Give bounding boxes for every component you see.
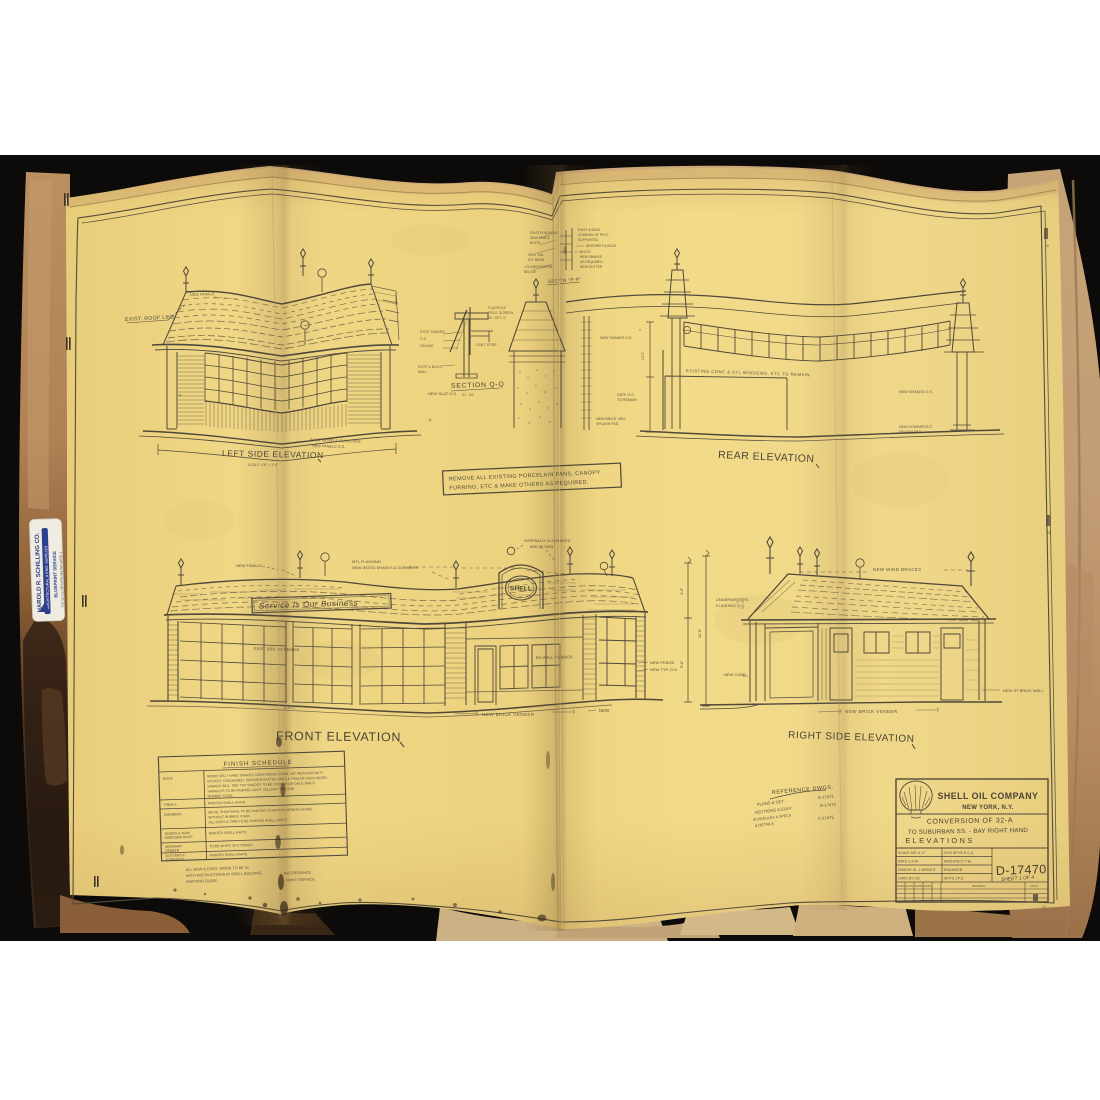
svg-text:NEW BRICK VEN.: NEW BRICK VEN. bbox=[596, 417, 626, 421]
svg-text:LEFT SIDE ELEVATION: LEFT SIDE ELEVATION bbox=[222, 448, 324, 460]
svg-text:MARK: MARK bbox=[915, 884, 923, 888]
svg-text:SC. 3/4": SC. 3/4" bbox=[462, 393, 475, 397]
svg-text:10'-0": 10'-0" bbox=[641, 351, 645, 360]
svg-text:EXIST FLAGPOLE: EXIST FLAGPOLE bbox=[530, 231, 559, 235]
svg-text:INTERNALLY ILLUMINATED: INTERNALLY ILLUMINATED bbox=[524, 539, 571, 543]
svg-text:13: 13 bbox=[1042, 905, 1046, 909]
svg-text:NEW DOWNSPOUT: NEW DOWNSPOUT bbox=[899, 425, 933, 429]
svg-text:STL BEAM: STL BEAM bbox=[528, 258, 544, 262]
svg-text:15: 15 bbox=[1045, 244, 1049, 248]
svg-text:PROJ. SCREEN: PROJ. SCREEN bbox=[488, 311, 514, 315]
svg-text:NEW SHAKES O.S.: NEW SHAKES O.S. bbox=[600, 336, 632, 340]
svg-text:DWN BY W. J. WRIGHT: DWN BY W. J. WRIGHT bbox=[898, 868, 937, 872]
svg-text:NEW TYP. O.S.: NEW TYP. O.S. bbox=[650, 667, 678, 672]
svg-text:NEW GUTTER: NEW GUTTER bbox=[580, 265, 603, 269]
svg-text:4'-0": 4'-0" bbox=[680, 587, 684, 595]
svg-text:ELEVATIONS: ELEVATIONS bbox=[905, 836, 974, 845]
svg-text:D'WNSP'TS: D'WNSP'TS bbox=[166, 857, 185, 862]
svg-text:BOLTS: BOLTS bbox=[530, 241, 541, 245]
svg-text:DATE: DATE bbox=[924, 884, 931, 888]
svg-text:TO REMAIN: TO REMAIN bbox=[617, 398, 637, 402]
svg-text:G.O.L.: G.O.L. bbox=[284, 705, 296, 710]
svg-text:VENT DIA.: VENT DIA. bbox=[528, 253, 544, 257]
svg-text:REVISION: REVISION bbox=[972, 884, 985, 888]
svg-text:SCALE 1/8"=1'-0": SCALE 1/8"=1'-0" bbox=[898, 851, 926, 855]
svg-text:15: 15 bbox=[1047, 531, 1051, 535]
svg-text:WALL: WALL bbox=[418, 370, 427, 374]
svg-text:APV'D J.P.G.: APV'D J.P.G. bbox=[944, 877, 964, 881]
svg-text:AS REQUIRED: AS REQUIRED bbox=[580, 260, 603, 264]
svg-text:O.S.: O.S. bbox=[420, 337, 427, 341]
svg-text:AND (B) SIGN: AND (B) SIGN bbox=[530, 545, 554, 549]
svg-text:APVD: APVD bbox=[1030, 884, 1038, 888]
svg-text:CHANNEL OF PECT: CHANNEL OF PECT bbox=[578, 233, 609, 237]
svg-text:RUBBED STAIN.: RUBBED STAIN. bbox=[208, 794, 234, 799]
svg-text:NEW: NEW bbox=[599, 708, 610, 713]
svg-text:EX WALL TO BRICK: EX WALL TO BRICK bbox=[536, 654, 573, 660]
svg-text:DATE: DATE bbox=[906, 884, 913, 888]
svg-text:BOLTS: BOLTS bbox=[580, 250, 591, 254]
svg-text:NEW BRACE: NEW BRACE bbox=[530, 236, 551, 240]
svg-text:NEW SLAT O.S.: NEW SLAT O.S. bbox=[428, 391, 457, 396]
svg-text:SC. DET. 3": SC. DET. 3" bbox=[488, 316, 507, 320]
svg-text:NEW FRIEZE: NEW FRIEZE bbox=[650, 660, 675, 665]
svg-text:SPLASH PAD: SPLASH PAD bbox=[596, 422, 619, 426]
svg-text:SHELL: SHELL bbox=[510, 586, 532, 593]
svg-text:NEW WIND BRACES: NEW WIND BRACES bbox=[873, 567, 921, 572]
svg-text:CHKD BY CR: CHKD BY CR bbox=[898, 877, 920, 881]
svg-text:9'-6": 9'-6" bbox=[680, 660, 684, 668]
svg-text:NEW BRKT & BLDG: NEW BRKT & BLDG bbox=[586, 244, 617, 248]
svg-text:CH'K APV'D E.C.A.: CH'K APV'D E.C.A. bbox=[944, 851, 974, 855]
svg-text:SHELL OIL COMPANY: SHELL OIL COMPANY bbox=[938, 791, 1039, 801]
svg-text:FINIALS: FINIALS bbox=[164, 802, 178, 806]
svg-text:MTL FLASHING: MTL FLASHING bbox=[352, 559, 381, 564]
svg-text:FLAGPOLE: FLAGPOLE bbox=[488, 306, 507, 310]
svg-text:ENGINEER: ENGINEER bbox=[944, 868, 963, 872]
svg-text:NEW FINIALS: NEW FINIALS bbox=[236, 563, 262, 568]
svg-text:SCALE 1/8" = 1'-0": SCALE 1/8" = 1'-0" bbox=[248, 463, 279, 467]
svg-text:NEW SHAKES: NEW SHAKES bbox=[580, 255, 603, 259]
svg-text:13'-6": 13'-6" bbox=[698, 628, 702, 638]
svg-text:SPLASH PAD: SPLASH PAD bbox=[899, 430, 922, 434]
svg-text:ARCHITECT T.W.: ARCHITECT T.W. bbox=[944, 860, 972, 864]
svg-text:MARK: MARK bbox=[897, 884, 905, 888]
svg-text:BELOW: BELOW bbox=[524, 270, 537, 274]
svg-text:NEW WOOD SHAKES & DORMERS: NEW WOOD SHAKES & DORMERS bbox=[352, 565, 418, 570]
svg-text:NEW ST BRICK WALL: NEW ST BRICK WALL bbox=[1003, 688, 1044, 693]
svg-text:SUPPORTED: SUPPORTED bbox=[578, 238, 599, 242]
svg-text:NEW BRICK VENEER: NEW BRICK VENEER bbox=[482, 712, 535, 717]
svg-text:DORMERS: DORMERS bbox=[164, 812, 182, 817]
svg-text:EXIST SHAKES: EXIST SHAKES bbox=[420, 330, 445, 334]
svg-text:EXIST & BLDG: EXIST & BLDG bbox=[578, 228, 601, 232]
svg-text:VENEER: VENEER bbox=[165, 848, 180, 852]
svg-text:DATE 1-3-44: DATE 1-3-44 bbox=[898, 860, 918, 864]
svg-text:CANT. STRIP: CANT. STRIP bbox=[476, 343, 497, 347]
svg-text:CEILING: CEILING bbox=[420, 344, 434, 348]
svg-text:GATE O.S.: GATE O.S. bbox=[617, 393, 635, 397]
svg-text:ROOF: ROOF bbox=[163, 777, 173, 781]
svg-text:NEW YORK, N.Y.: NEW YORK, N.Y. bbox=[962, 805, 1013, 811]
svg-text:EXIST & BLD'G: EXIST & BLD'G bbox=[418, 365, 442, 369]
svg-text:FRONT ELEVATION: FRONT ELEVATION bbox=[276, 729, 401, 744]
svg-text:NEW SHAKES O.S.: NEW SHAKES O.S. bbox=[899, 390, 933, 394]
svg-text:NEW BRICK VENEER: NEW BRICK VENEER bbox=[845, 709, 898, 714]
